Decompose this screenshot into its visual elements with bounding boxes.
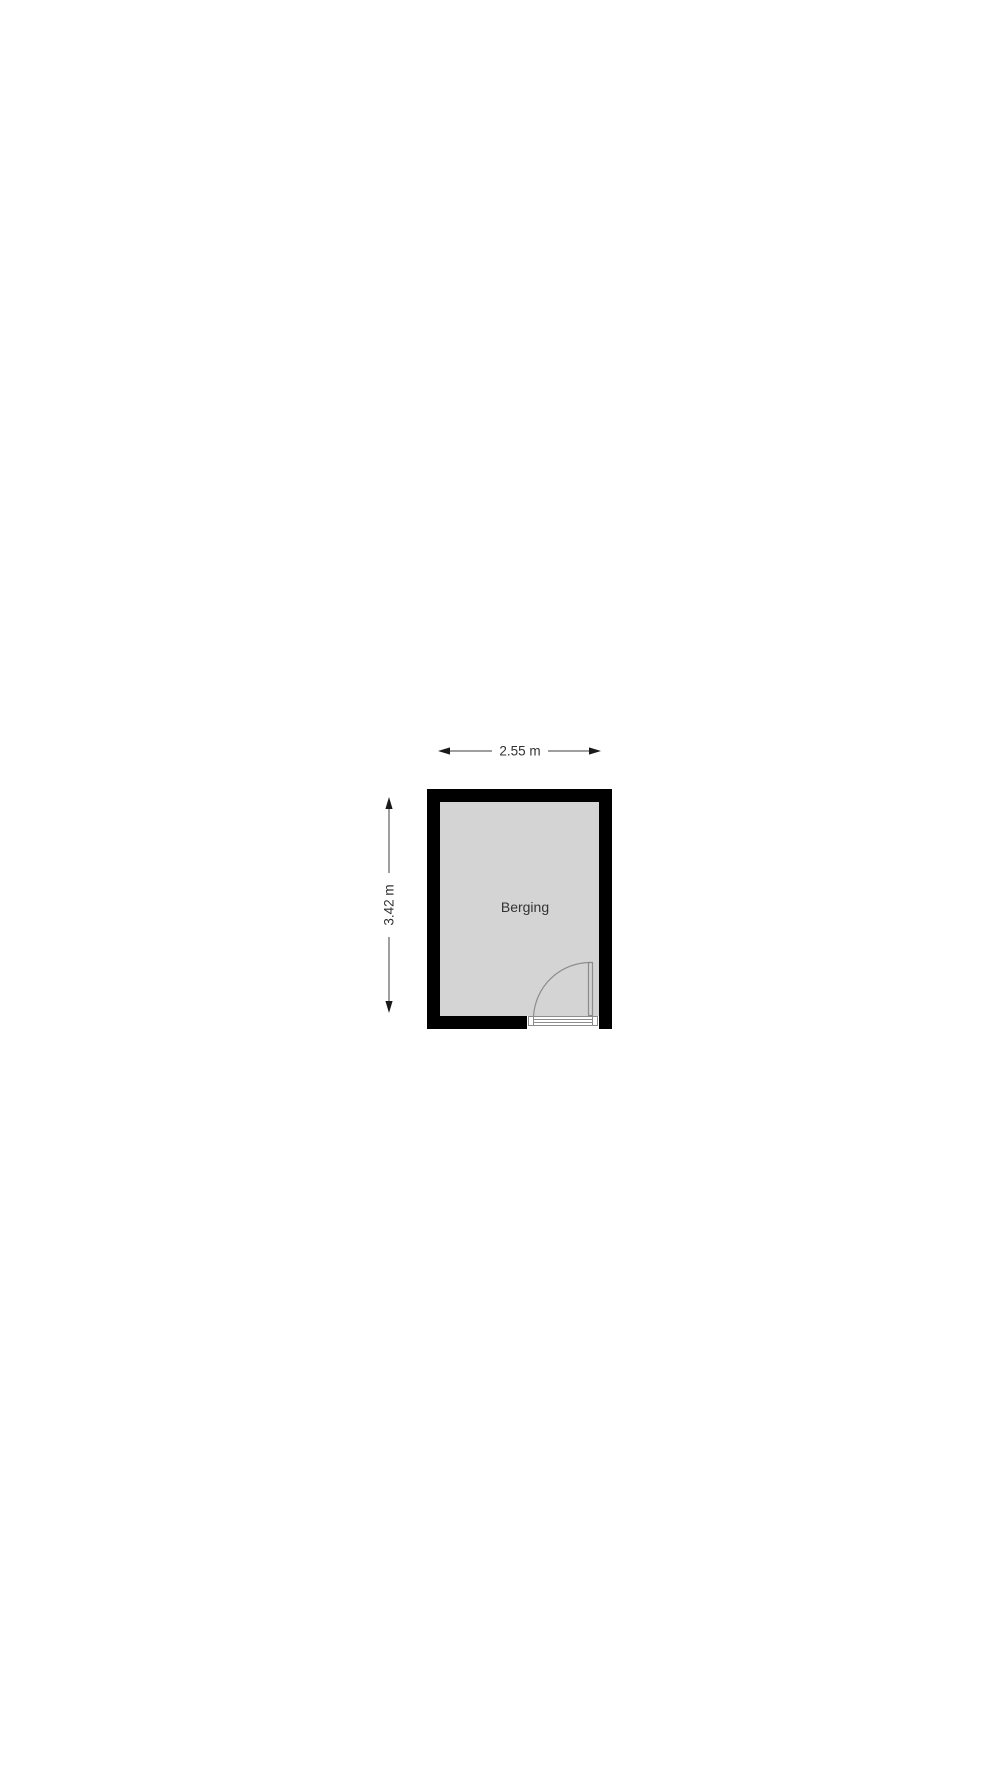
width-dimension: 2.55 m bbox=[438, 744, 601, 759]
page-background: Berging 2.55 m 3.42 m bbox=[0, 0, 1000, 1777]
door-threshold bbox=[529, 1017, 598, 1026]
height-dimension-label: 3.42 m bbox=[382, 884, 397, 925]
room-label: Berging bbox=[501, 899, 549, 915]
height-dimension: 3.42 m bbox=[382, 797, 397, 1013]
threshold-outline bbox=[529, 1017, 598, 1026]
width-dimension-label: 2.55 m bbox=[499, 744, 540, 759]
threshold-end-cap bbox=[593, 1017, 598, 1026]
arrow-up-icon bbox=[385, 797, 392, 809]
arrow-right-icon bbox=[589, 747, 601, 754]
threshold-end-cap bbox=[529, 1017, 534, 1026]
floor-plan: Berging 2.55 m 3.42 m bbox=[0, 0, 1000, 1777]
arrow-left-icon bbox=[438, 747, 450, 754]
arrow-down-icon bbox=[385, 1001, 392, 1013]
